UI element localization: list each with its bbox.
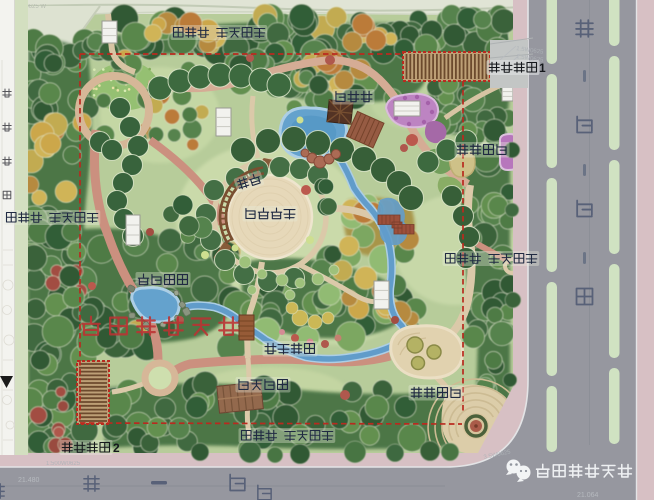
svg-text:21.064: 21.064 (577, 492, 599, 499)
svg-text:2: 2 (113, 441, 120, 455)
svg-text:1:500W0625: 1:500W0625 (46, 461, 81, 467)
svg-text:1: 1 (539, 61, 546, 75)
svg-text:21.480: 21.480 (18, 477, 40, 484)
